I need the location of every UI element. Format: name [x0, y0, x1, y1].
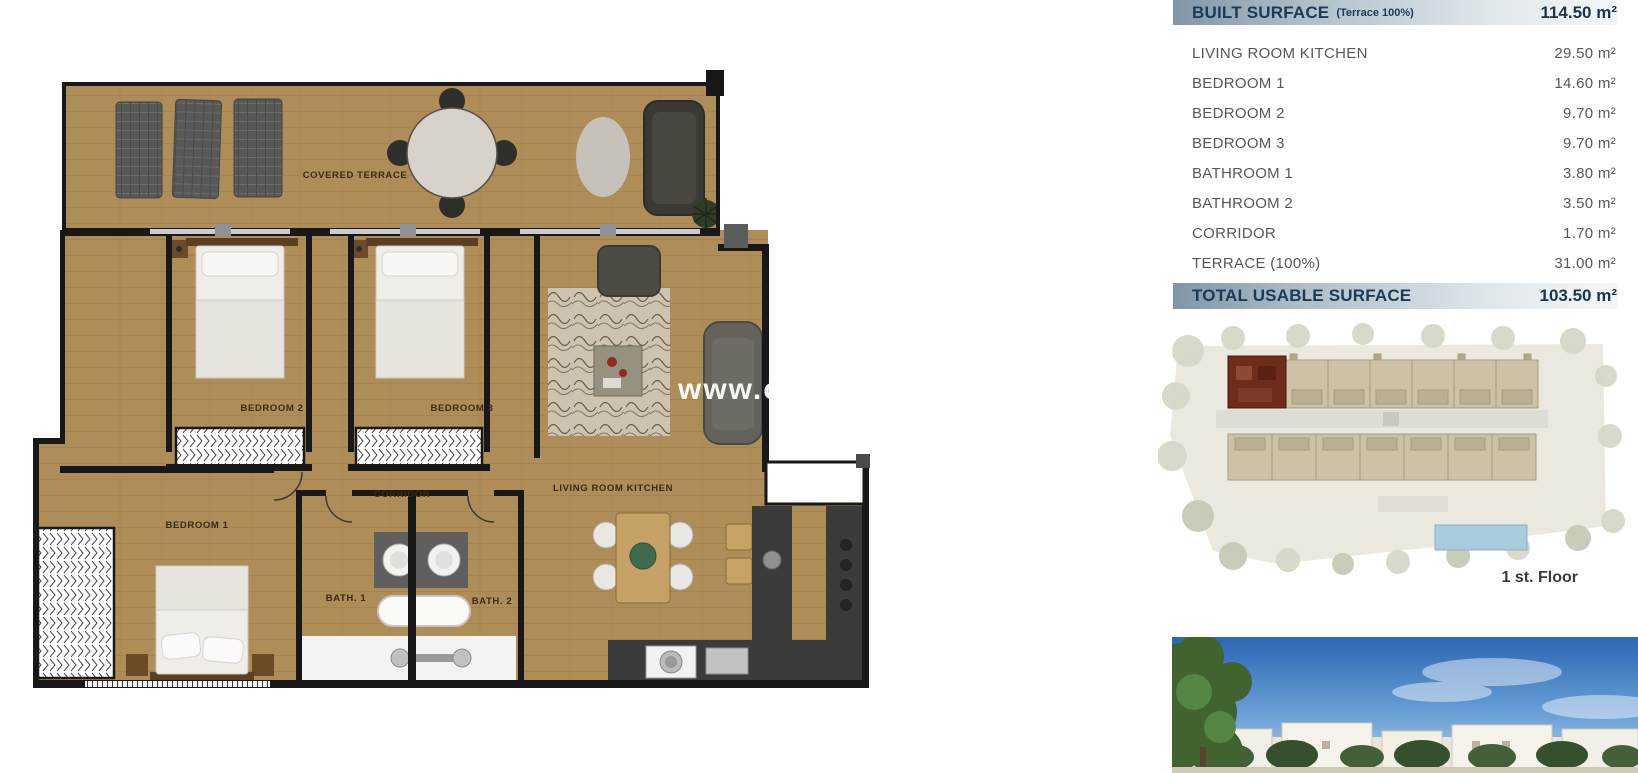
bathtub [378, 596, 470, 626]
coffee-table [594, 346, 642, 396]
washing-machine [646, 646, 696, 678]
covered-terrace-label: COVERED TERRACE [303, 170, 408, 181]
row-label: BEDROOM 3 [1192, 135, 1285, 152]
row-label: TERRACE (100%) [1192, 255, 1320, 272]
row-value: 31.00 m² [1554, 255, 1616, 272]
apartment-floor-plan: COVERED TERRACE BEDROOM 2 BEDROOM 3 CORR… [0, 0, 900, 773]
bedroom3-label: BEDROOM 3 [431, 403, 494, 414]
entry-landing [766, 454, 870, 504]
total-label: TOTAL USABLE SURFACE [1192, 286, 1411, 306]
table-row: LIVING ROOM KITCHEN 29.50 m² [1173, 38, 1618, 68]
terrace-loungers [116, 99, 282, 199]
built-surface-label: BUILT SURFACE [1192, 3, 1329, 23]
unit-row-top [1286, 354, 1538, 408]
site-plan: 1 st. Floor [1158, 316, 1630, 590]
ground-strip [1172, 767, 1638, 773]
row-label: LIVING ROOM KITCHEN [1192, 45, 1368, 62]
terrace-sofa [644, 101, 704, 215]
table-row: TERRACE (100%) 31.00 m² [1173, 248, 1618, 278]
total-value: 103.50 m² [1540, 286, 1618, 306]
unit-row-bottom [1228, 434, 1536, 480]
row-value: 9.70 m² [1563, 105, 1616, 122]
bath2-label: BATH. 2 [472, 596, 512, 607]
table-row: BATHROOM 2 3.50 m² [1173, 188, 1618, 218]
row-value: 1.70 m² [1563, 225, 1616, 242]
row-label: BATHROOM 1 [1192, 165, 1293, 182]
table-row: BATHROOM 1 3.80 m² [1173, 158, 1618, 188]
pool [1435, 525, 1527, 550]
surface-rows: LIVING ROOM KITCHEN 29.50 m² BEDROOM 1 1… [1173, 38, 1618, 278]
total-usable-surface-band: TOTAL USABLE SURFACE 103.50 m² [1173, 283, 1618, 309]
garden-vegetation [1210, 740, 1638, 770]
site-road [1216, 410, 1548, 428]
row-value: 3.50 m² [1563, 195, 1616, 212]
row-label: CORRIDOR [1192, 225, 1276, 242]
row-label: BEDROOM 2 [1192, 105, 1285, 122]
living-armchair [598, 246, 660, 296]
terrace-rug [576, 117, 630, 197]
built-surface-header: BUILT SURFACE (Terrace 100%) 114.50 m² [1173, 0, 1618, 25]
bath1-label: BATH. 1 [326, 593, 367, 604]
development-photo [1172, 637, 1638, 773]
row-value: 3.80 m² [1563, 165, 1616, 182]
row-value: 14.60 m² [1554, 75, 1616, 92]
bedroom1-label: BEDROOM 1 [166, 520, 229, 531]
watermark-text: www.ca [677, 373, 801, 406]
living-room-kitchen-label: LIVING ROOM KITCHEN [553, 483, 673, 494]
row-label: BEDROOM 1 [1192, 75, 1285, 92]
bedroom1-wardrobe [38, 528, 114, 678]
table-row: BEDROOM 1 14.60 m² [1173, 68, 1618, 98]
bedroom2-label: BEDROOM 2 [241, 403, 304, 414]
bathroom-vanity [374, 532, 468, 588]
bedroom3-wardrobe [356, 428, 482, 466]
built-surface-value: 114.50 m² [1540, 3, 1617, 23]
terrace-note: (Terrace 100%) [1336, 7, 1413, 19]
site-path [1378, 496, 1448, 512]
table-row: BEDROOM 3 9.70 m² [1173, 128, 1618, 158]
row-label: BATHROOM 2 [1192, 195, 1293, 212]
row-value: 9.70 m² [1563, 135, 1616, 152]
corridor-label: CORRIDOR [374, 489, 431, 500]
table-row: BEDROOM 2 9.70 m² [1173, 98, 1618, 128]
highlighted-unit [1228, 356, 1286, 408]
surface-table: BUILT SURFACE (Terrace 100%) 114.50 m² L… [1173, 0, 1618, 309]
bedroom2-wardrobe [176, 428, 304, 466]
table-row: CORRIDOR 1.70 m² [1173, 218, 1618, 248]
row-value: 29.50 m² [1554, 45, 1616, 62]
floor-caption: 1 st. Floor [1502, 569, 1578, 586]
road-entry [1383, 412, 1399, 426]
